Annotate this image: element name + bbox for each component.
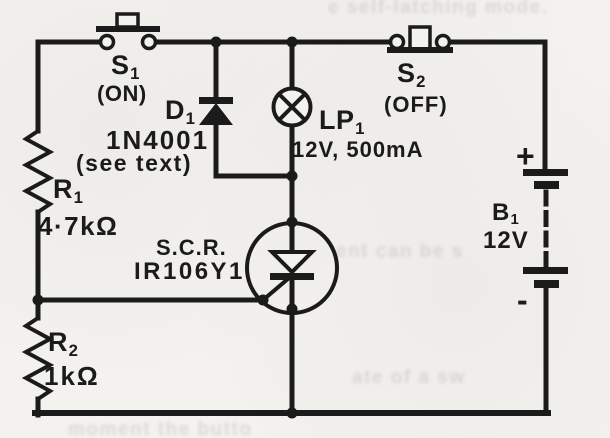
switch-s2-symbol [387,27,453,53]
s2-ref-subscript: 2 [416,72,426,91]
scr-type-label: S.C.R. [156,237,227,259]
battery-b1-symbol [523,169,568,288]
battery-minus-sign: - [517,284,528,316]
right-rail-wire [545,42,546,413]
r2-ref: R [48,327,68,357]
r2-ref-subscript: 2 [69,341,79,360]
d1-label: D1 [165,97,195,124]
s2-ref: S [397,58,416,88]
battery-plus-sign: + [516,140,535,172]
switch-s1-symbol [96,14,160,49]
r1-label: R1 [53,176,83,203]
r1-ref-subscript: 1 [74,188,84,207]
lp1-ref-subscript: 1 [355,119,365,138]
s1-label: S1 [111,52,139,79]
resistor-r1-symbol [26,131,50,212]
lp1-label: LP1 [319,107,364,134]
d1-ref: D [165,95,185,125]
schematic-figure: e self-latching mode. ent can be s ate o… [0,0,610,438]
b1-ref: B [492,199,510,226]
s2-label: S2 [397,60,425,87]
s1-mode-label: (ON) [97,83,147,105]
r2-value-label: 1kΩ [44,363,100,389]
b1-voltage-label: 12V [483,229,529,253]
r1-value-label: 4·7kΩ [38,213,118,239]
s2-mode-label: (OFF) [384,94,448,116]
b1-label: B1 [492,201,519,225]
lp1-ref: LP [319,105,355,135]
scr-symbol [247,176,337,413]
s1-ref: S [111,50,130,80]
r1-ref: R [53,174,73,204]
r2-label: R2 [48,329,78,356]
scr-part-label: IR106Y1 [134,260,245,284]
lp1-rating-label: 12V, 500mA [292,139,424,161]
d1-note-label: (see text) [76,152,192,175]
